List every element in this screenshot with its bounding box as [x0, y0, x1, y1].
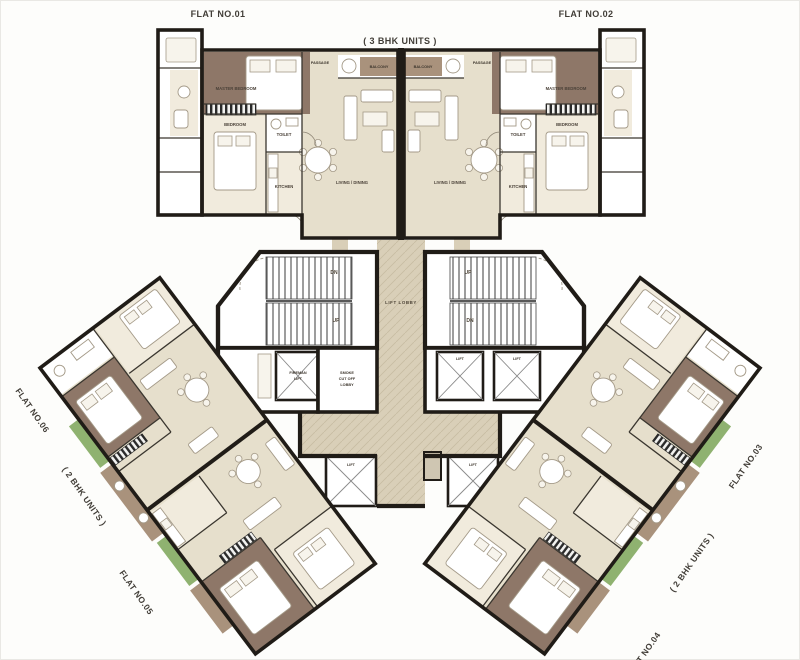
- floor-plan-image: FLAT NO.01 FLAT NO.02 ( 3 BHK UNITS ) FL…: [0, 0, 800, 660]
- flat-01-label: FLAT NO.01: [191, 9, 246, 19]
- flat-03-label: FLAT NO.03: [727, 442, 765, 490]
- room-label-balcony: BALCONY: [414, 65, 433, 69]
- flat-01-plan: [158, 30, 404, 253]
- room-label-living-dining: LIVING / DINING: [336, 180, 368, 185]
- room-label-kitchen: KITCHEN: [275, 184, 294, 189]
- stair-up-label: UP: [465, 270, 473, 276]
- stair-up-label: UP: [333, 318, 341, 324]
- fireman-lift-label-2: LIFT: [294, 377, 303, 381]
- smoke-lobby-label-1: SMOKE: [340, 371, 354, 375]
- flat-06-label: FLAT NO.06: [13, 386, 51, 434]
- room-label-bedroom: BEDROOM: [556, 122, 578, 127]
- flat-02-plan: [398, 30, 644, 253]
- flat-05-label: FLAT NO.05: [117, 568, 155, 616]
- room-label-bedroom: BEDROOM: [224, 122, 246, 127]
- units-2bhk-right-label: ( 2 BHK UNITS ): [667, 531, 715, 594]
- room-label-kitchen: KITCHEN: [509, 184, 528, 189]
- stair-dn-label: DN: [330, 270, 338, 276]
- units-3bhk-label: ( 3 BHK UNITS ): [363, 36, 437, 46]
- smoke-lobby-label-3: LOBBY: [340, 383, 354, 387]
- room-label-passage: PASSAGE: [473, 61, 492, 65]
- room-label-living-dining: LIVING / DINING: [434, 180, 466, 185]
- room-label-balcony: BALCONY: [370, 65, 389, 69]
- stair-flight: [450, 303, 536, 345]
- stairwell-left: [218, 252, 377, 348]
- room-label-passage: PASSAGE: [311, 61, 330, 65]
- fireman-lift-label-1: FIREMAN: [289, 371, 307, 375]
- flat-04-label: FLAT NO.04: [625, 630, 663, 660]
- stair-flight: [266, 257, 352, 299]
- lift-label: LIFT: [469, 463, 478, 467]
- lift-label: LIFT: [456, 357, 465, 361]
- stairwell-right: [425, 252, 584, 348]
- lift-label: LIFT: [347, 463, 356, 467]
- stair-flight: [450, 257, 536, 299]
- room-label-master-bedroom: MASTER BEDROOM: [546, 86, 587, 91]
- flat-02-label: FLAT NO.02: [559, 9, 614, 19]
- lift-lobby-label: LIFT LOBBY: [385, 300, 417, 305]
- smoke-lobby-label-2: CUT OFF: [339, 377, 356, 381]
- room-label-toilet: TOILET: [277, 132, 292, 137]
- stair-dn-label: DN: [466, 318, 474, 324]
- lift-label: LIFT: [513, 357, 522, 361]
- stair-flight: [266, 303, 352, 345]
- room-label-master-bedroom: MASTER BEDROOM: [216, 86, 257, 91]
- room-label-toilet: TOILET: [511, 132, 526, 137]
- floor-plan-svg: FLAT NO.01 FLAT NO.02 ( 3 BHK UNITS ) FL…: [0, 0, 800, 660]
